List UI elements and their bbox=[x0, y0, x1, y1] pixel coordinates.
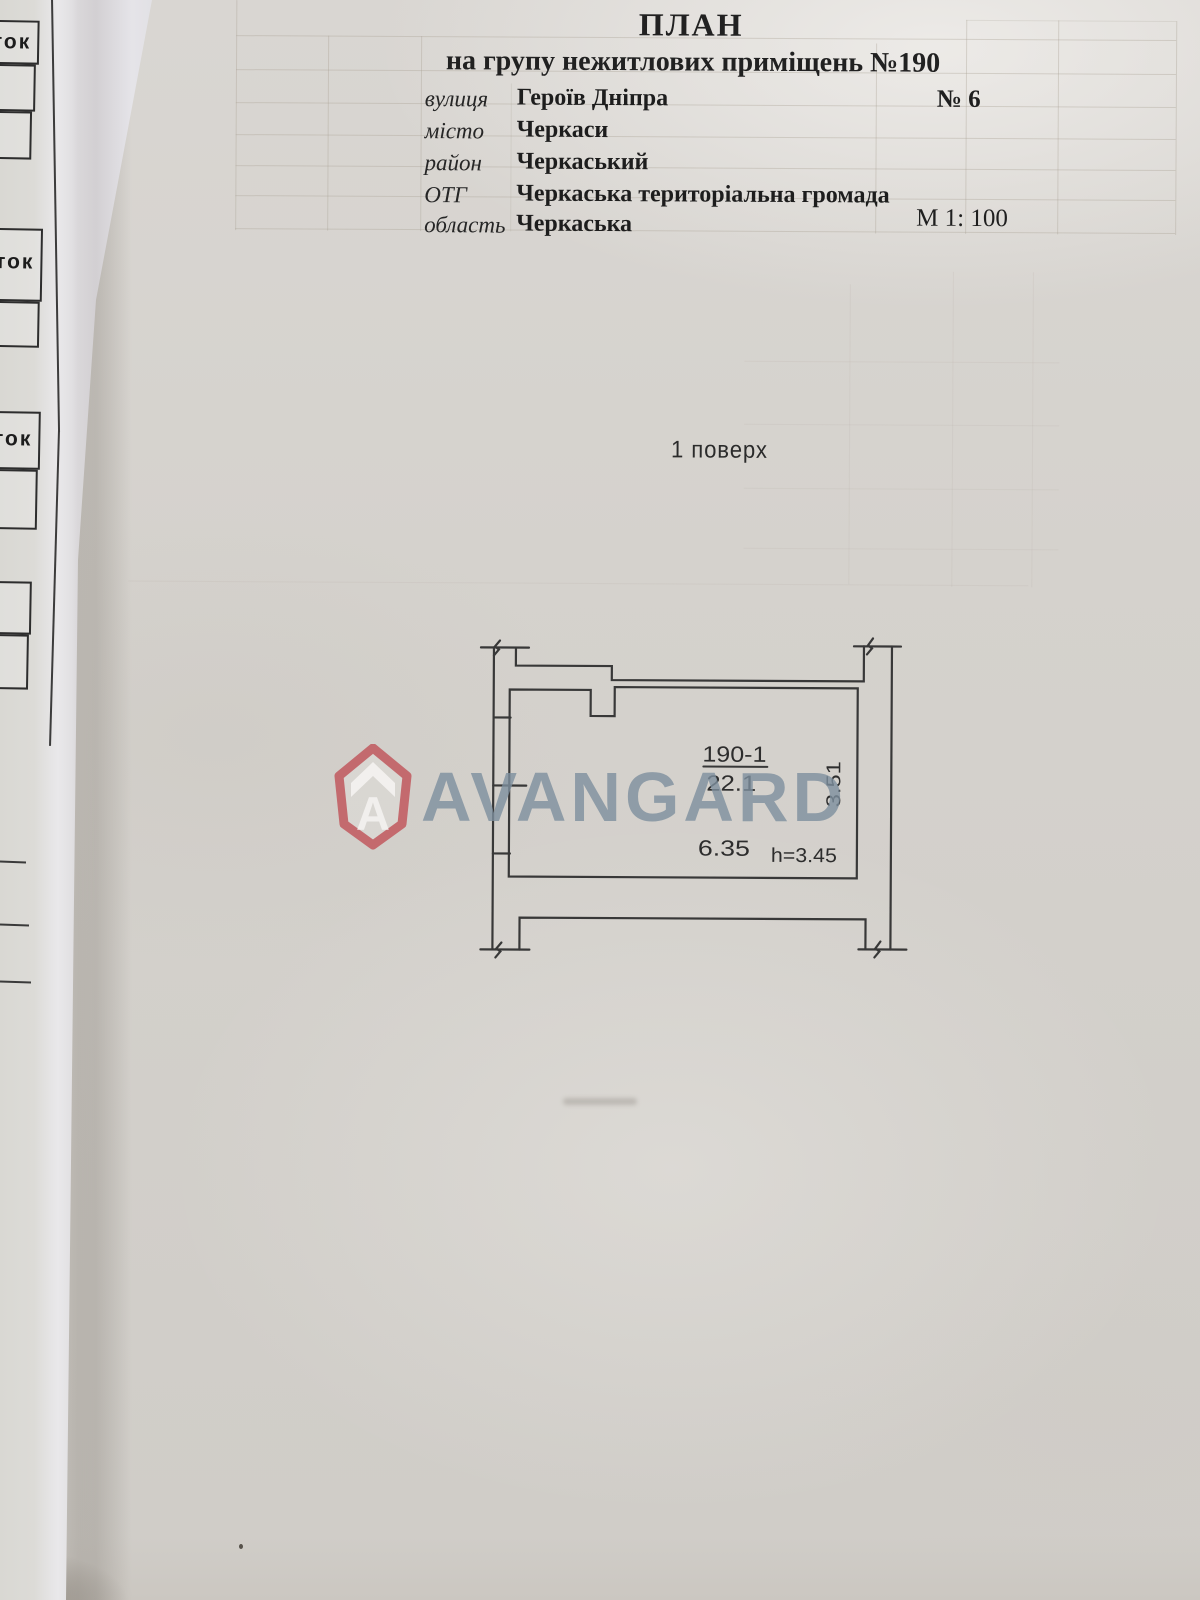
plan-page: ПЛАН на групу нежитлових приміщень №190 … bbox=[0, 0, 1200, 1600]
floor-plan: 190-1 22.1 6.35 h=3.45 3.51 bbox=[436, 599, 938, 982]
field-label-street: вулиця bbox=[425, 86, 488, 112]
room-number-label: 190-1 bbox=[702, 742, 766, 767]
room-width-dim: 6.35 bbox=[698, 836, 750, 861]
field-label-region: область bbox=[424, 212, 505, 238]
page-subtitle: на групу нежитлових приміщень №190 bbox=[446, 45, 941, 80]
room-height-dim: h=3.45 bbox=[771, 845, 837, 867]
building-number: № 6 bbox=[937, 86, 981, 114]
field-row: ОТГ Черкаська територіальна громада bbox=[1, 0, 1200, 3]
document-photo: ПЛАН на групу нежитлових приміщень №190 … bbox=[0, 0, 1200, 1600]
underlying-table-border bbox=[49, 430, 60, 746]
paper-smudge bbox=[563, 1098, 637, 1105]
page-title: ПЛАН bbox=[639, 6, 744, 44]
floor-label: 1 поверх bbox=[671, 436, 768, 465]
tok-fragment-label: ток bbox=[0, 427, 33, 452]
paper-speck bbox=[239, 1544, 243, 1549]
tok-fragment-label: ток bbox=[0, 30, 31, 55]
field-value-street: Героїв Дніпра bbox=[517, 85, 668, 113]
field-label-otg: ОТГ bbox=[424, 182, 467, 208]
showthrough-grid bbox=[1, 0, 1200, 3]
room-area-label: 22.1 bbox=[706, 771, 756, 796]
table-grid bbox=[1, 0, 1200, 3]
tok-fragment-label: ток bbox=[0, 250, 35, 275]
field-label-city: місто bbox=[425, 118, 485, 144]
underlying-table-line bbox=[0, 861, 26, 864]
map-scale: М 1: 100 bbox=[916, 205, 1008, 233]
field-value-otg: Черкаська територіальна громада bbox=[516, 181, 889, 210]
room-depth-dim: 3.51 bbox=[823, 761, 845, 807]
plan-labels: 190-1 22.1 6.35 h=3.45 3.51 bbox=[698, 742, 846, 868]
field-row: місто Черкаси bbox=[1, 0, 1200, 3]
underlying-table-border bbox=[51, 0, 60, 432]
field-row: район Черкаський bbox=[1, 0, 1200, 3]
underlying-table-line bbox=[0, 923, 29, 926]
field-value-district: Черкаський bbox=[516, 149, 648, 177]
underlying-table-line bbox=[0, 980, 31, 983]
field-row: область Черкаська М 1: 100 bbox=[1, 0, 1200, 3]
printed-content: ПЛАН на групу нежитлових приміщень №190 … bbox=[0, 0, 1200, 1600]
field-row: вулиця Героїв Дніпра № 6 bbox=[1, 0, 1200, 3]
field-value-region: Черкаська bbox=[516, 211, 632, 239]
field-value-city: Черкаси bbox=[517, 117, 609, 144]
field-label-district: район bbox=[424, 150, 482, 176]
